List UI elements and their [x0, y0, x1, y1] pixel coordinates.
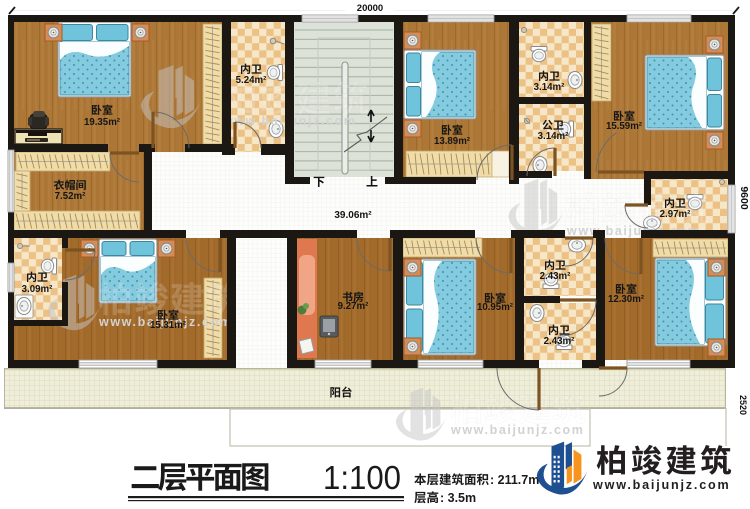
svg-text:15.59m²: 15.59m² — [606, 121, 643, 132]
svg-text:www.baijunjz.com: www.baijunjz.com — [592, 478, 731, 492]
svg-text:: 211.7m²: : 211.7m² — [490, 473, 544, 487]
svg-text:39.06m²: 39.06m² — [334, 210, 372, 221]
svg-text:2.97m²: 2.97m² — [660, 209, 691, 220]
svg-text:9.27m²: 9.27m² — [338, 301, 369, 312]
svg-text:2520: 2520 — [738, 395, 748, 415]
svg-text:12.30m²: 12.30m² — [608, 294, 645, 305]
svg-text:5.24m²: 5.24m² — [236, 75, 267, 86]
svg-text:10.95m²: 10.95m² — [477, 302, 514, 313]
svg-text:3.14m²: 3.14m² — [538, 131, 569, 142]
svg-text:2.43m²: 2.43m² — [540, 271, 571, 282]
svg-text:15.31m²: 15.31m² — [150, 320, 187, 331]
svg-text:13.89m²: 13.89m² — [434, 136, 471, 147]
svg-text:3.09m²: 3.09m² — [22, 284, 53, 295]
svg-text:19.35m²: 19.35m² — [84, 117, 121, 128]
svg-text:9600: 9600 — [738, 186, 750, 210]
svg-text:20000: 20000 — [357, 3, 383, 14]
svg-text:3.14m²: 3.14m² — [534, 82, 565, 93]
svg-text:www.baijunjz.com: www.baijunjz.com — [450, 423, 584, 437]
svg-text:: 3.5m: : 3.5m — [440, 491, 476, 505]
svg-text:2.43m²: 2.43m² — [544, 336, 575, 347]
svg-text:1:100: 1:100 — [323, 459, 401, 496]
svg-text:7.52m²: 7.52m² — [55, 191, 86, 202]
